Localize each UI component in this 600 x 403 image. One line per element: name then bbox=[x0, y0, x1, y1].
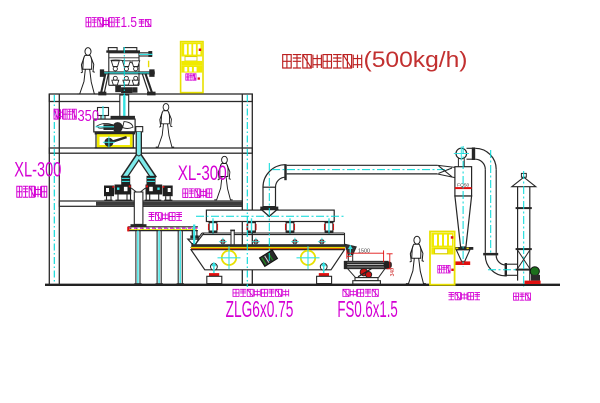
svg-text:1.5: 1.5 bbox=[121, 15, 138, 31]
svg-text:340: 340 bbox=[390, 268, 396, 277]
svg-text:FS0.6x1.5: FS0.6x1.5 bbox=[337, 296, 397, 322]
svg-text:ZLG6x0.75: ZLG6x0.75 bbox=[226, 296, 294, 322]
svg-text:1500: 1500 bbox=[358, 248, 370, 254]
svg-text:XL-300: XL-300 bbox=[178, 162, 227, 185]
svg-text:(500kg/h): (500kg/h) bbox=[364, 47, 468, 72]
svg-text:XL-300: XL-300 bbox=[14, 159, 61, 182]
svg-text:350: 350 bbox=[78, 108, 100, 125]
